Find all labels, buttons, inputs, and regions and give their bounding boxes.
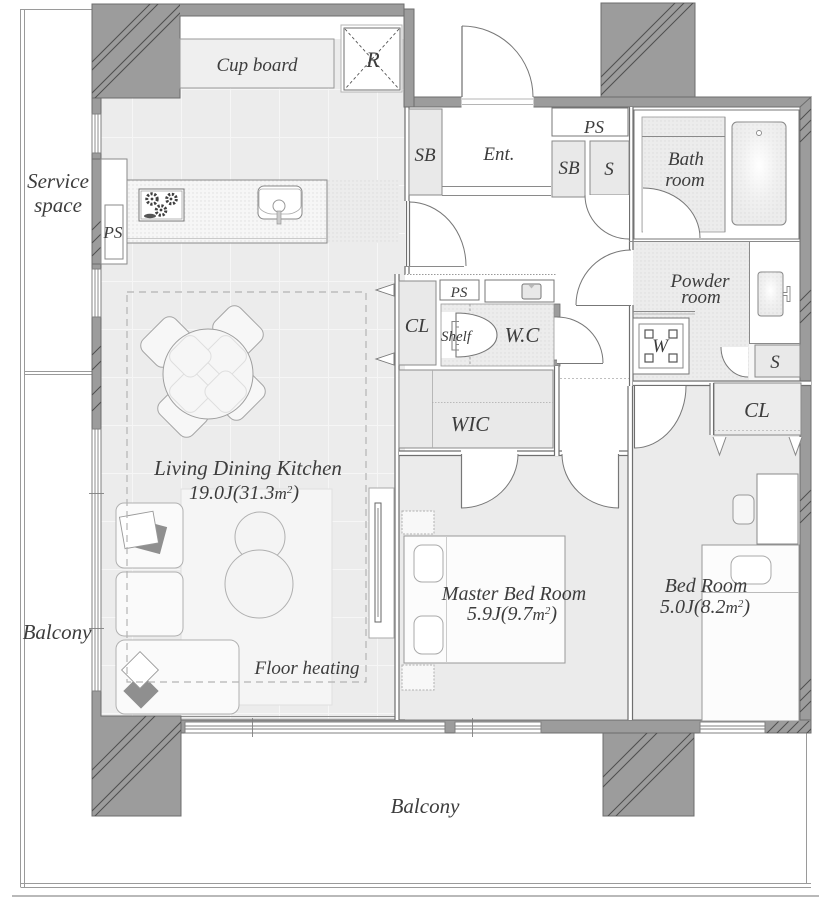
svg-text:Service: Service — [27, 169, 89, 193]
svg-text:space: space — [34, 193, 82, 217]
svg-text:Bath: Bath — [668, 149, 704, 170]
svg-text:W.C: W.C — [505, 323, 541, 347]
svg-text:Shelf: Shelf — [441, 329, 473, 345]
svg-text:CL: CL — [744, 398, 770, 422]
svg-text:PS: PS — [583, 117, 604, 137]
svg-text:S: S — [604, 159, 614, 180]
svg-text:room: room — [665, 170, 704, 191]
svg-text:room: room — [681, 287, 720, 308]
svg-text:Balcony: Balcony — [391, 794, 460, 818]
svg-text:Balcony: Balcony — [23, 620, 92, 644]
svg-text:Living Dining Kitchen: Living Dining Kitchen — [153, 456, 342, 480]
svg-text:5.9J(9.7m2): 5.9J(9.7m2) — [467, 603, 557, 625]
svg-text:CL: CL — [405, 315, 429, 337]
svg-text:S: S — [770, 352, 780, 373]
svg-text:PS: PS — [450, 285, 468, 301]
svg-text:5.0J(8.2m2): 5.0J(8.2m2) — [660, 596, 750, 618]
svg-text:R: R — [365, 47, 380, 72]
svg-text:WIC: WIC — [451, 412, 490, 436]
svg-text:Ent.: Ent. — [482, 144, 514, 165]
svg-text:19.0J(31.3m2): 19.0J(31.3m2) — [189, 482, 299, 504]
svg-text:SB: SB — [558, 158, 580, 179]
svg-text:Bed Room: Bed Room — [665, 575, 748, 597]
svg-text:Master Bed Room: Master Bed Room — [441, 583, 586, 605]
svg-text:SB: SB — [414, 145, 436, 166]
svg-text:Floor heating: Floor heating — [253, 658, 359, 679]
svg-text:Cup board: Cup board — [216, 55, 298, 76]
svg-text:PS: PS — [103, 223, 123, 242]
svg-text:W: W — [652, 336, 670, 357]
